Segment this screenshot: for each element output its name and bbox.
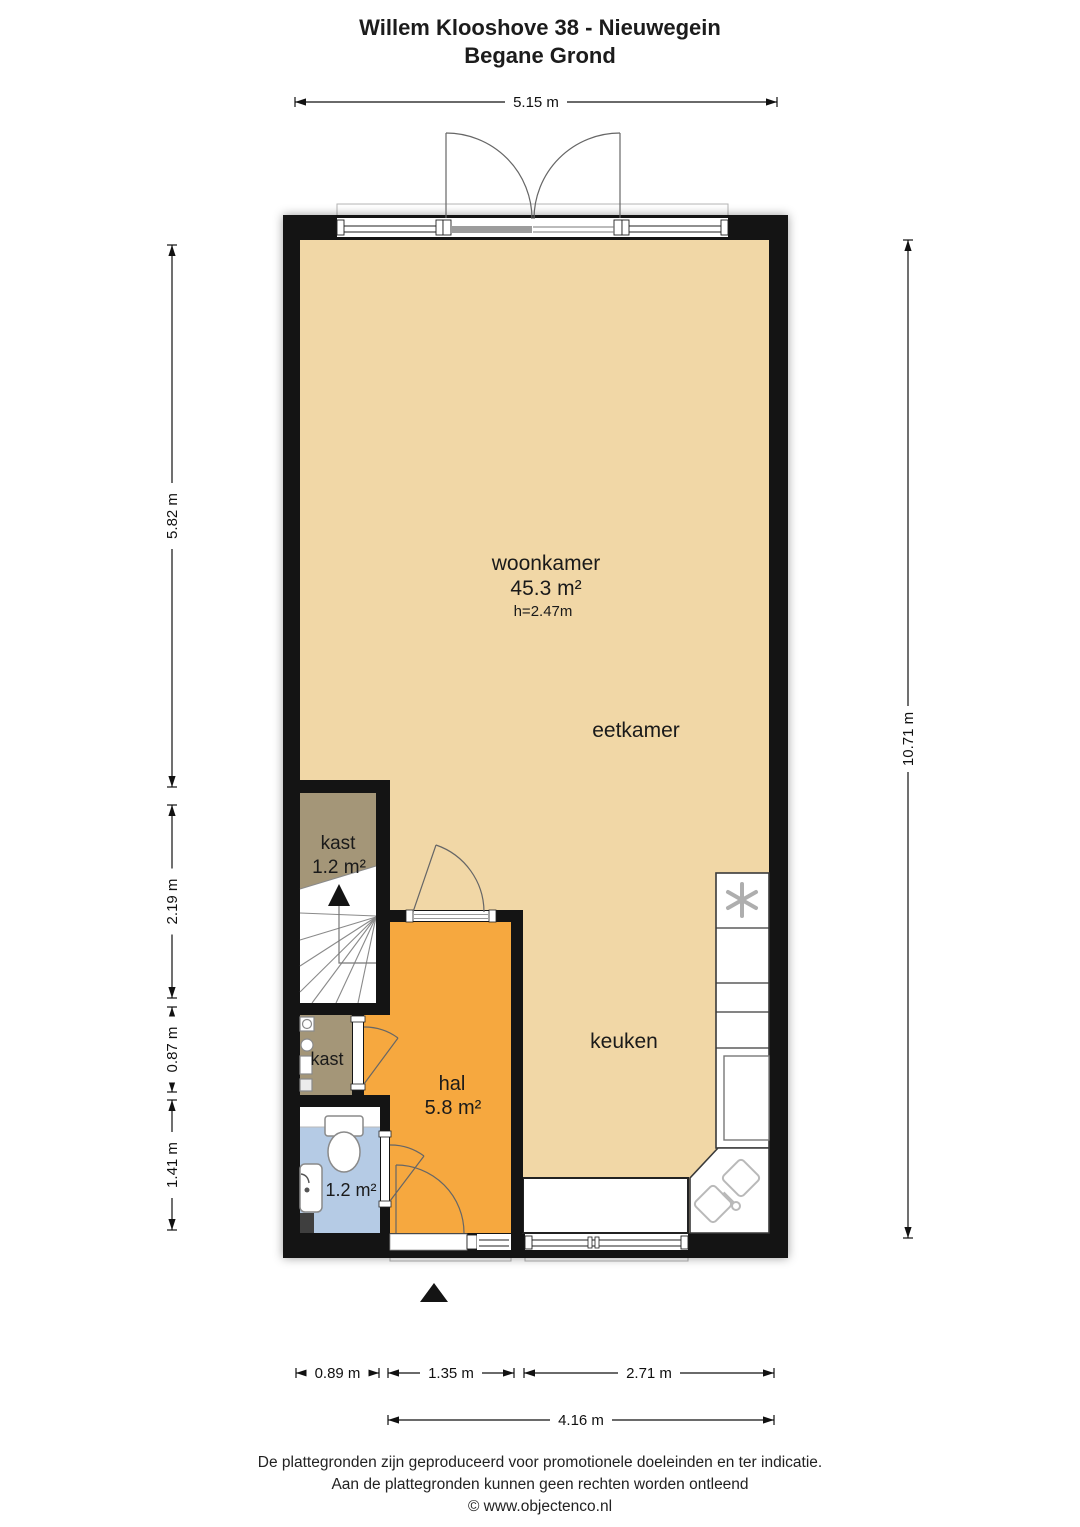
disclaimer: De plattegronden zijn geproduceerd voor … — [0, 1452, 1080, 1518]
label-hal-area: 5.8 m² — [425, 1097, 482, 1119]
label-kast-onder: kast — [310, 1049, 343, 1069]
dimension-left-lower: 0.87 m — [163, 1007, 181, 1092]
label-eetkamer: eetkamer — [592, 719, 680, 742]
wall-toilet-top — [283, 1095, 390, 1107]
disclaimer-line-1: De plattegronden zijn geproduceerd voor … — [0, 1452, 1080, 1474]
dimension-right: 10.71 m — [899, 240, 917, 1238]
dimension-left-bottom: 1.41 m — [163, 1100, 181, 1230]
dimension-label: 5.82 m — [164, 493, 181, 539]
dimension-label: 2.71 m — [626, 1365, 672, 1382]
dimension-label: 0.87 m — [164, 1027, 181, 1073]
label-woonkamer: woonkamer — [491, 552, 601, 575]
label-woonkamer-height: h=2.47m — [514, 603, 573, 620]
wall-under-stairs — [283, 1003, 390, 1015]
door-jamb — [379, 1131, 391, 1137]
entrance-marker-icon — [420, 1283, 448, 1302]
copyright: © www.objectenco.nl — [0, 1496, 1080, 1518]
kast-door-opening — [353, 1022, 363, 1084]
door-jamb — [379, 1201, 391, 1207]
dimension-label: 0.89 m — [315, 1365, 361, 1382]
wall-kast-top — [283, 780, 390, 793]
dimension-label: 4.16 m — [558, 1412, 604, 1429]
dimension-bottom-left: 0.89 m — [296, 1364, 379, 1382]
label-kast-boven: kast — [321, 833, 357, 854]
wall-stairs-right — [376, 780, 390, 1015]
dimension-label: 2.19 m — [164, 879, 181, 925]
sink-icon — [300, 1164, 322, 1212]
door-jamb — [351, 1016, 365, 1022]
top-wall-openings — [337, 218, 728, 237]
label-kast-boven-area: 1.2 m² — [312, 857, 366, 878]
label-woonkamer-area: 45.3 m² — [510, 577, 581, 600]
dimension-label: 1.41 m — [164, 1142, 181, 1188]
bottom-wall-openings — [390, 1234, 688, 1250]
label-hal: hal — [439, 1073, 466, 1095]
label-keuken: keuken — [590, 1030, 658, 1053]
door-jamb — [406, 910, 413, 922]
dimension-bottom-total: 4.16 m — [388, 1411, 774, 1429]
toilet-icon — [325, 1116, 363, 1172]
wall-hal-keuken — [511, 910, 523, 1233]
door-jamb — [351, 1084, 365, 1090]
door-jamb — [489, 910, 496, 922]
dimension-label: 1.35 m — [428, 1365, 474, 1382]
dimension-bottom-mid: 1.35 m — [388, 1364, 514, 1382]
duct-shaft — [300, 1213, 314, 1233]
label-toilet-area: 1.2 m² — [325, 1180, 376, 1200]
stairs — [300, 866, 376, 1003]
hal-door-opening — [412, 911, 490, 921]
dimension-left-upper: 5.82 m — [163, 245, 181, 787]
kitchen-window-unit — [523, 1178, 688, 1233]
dimension-label: 5.15 m — [513, 94, 559, 111]
front-door-threshold — [390, 1234, 467, 1250]
toilet-door-opening — [381, 1137, 389, 1201]
disclaimer-line-2: Aan de plattegronden kunnen geen rechten… — [0, 1474, 1080, 1496]
dimension-top: 5.15 m — [295, 93, 777, 111]
dimension-label: 10.71 m — [900, 712, 917, 766]
dimension-bottom-right: 2.71 m — [524, 1364, 774, 1382]
dimension-left-mid: 2.19 m — [163, 805, 181, 998]
floor-plan: woonkamer 45.3 m² h=2.47m eetkamer keuke… — [0, 0, 1080, 1527]
toilet-room — [300, 1107, 380, 1233]
